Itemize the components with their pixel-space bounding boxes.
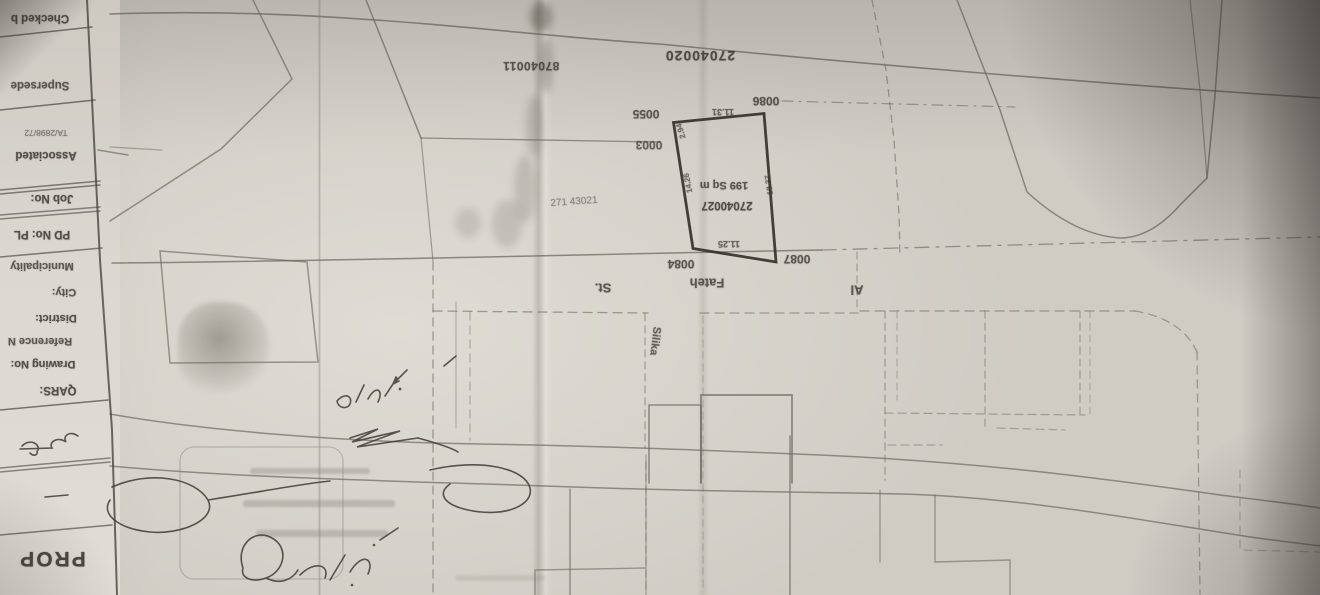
title-row-reference-no: Reference N	[8, 335, 72, 347]
title-row-associated: Associated	[15, 149, 76, 161]
title-row-qars: QARS:	[39, 384, 76, 396]
title-row-drawing-no: Drawing No:	[11, 358, 76, 370]
title-row-assoc-ref: TA/2898/72	[24, 128, 67, 138]
title-row-prop: PROP	[18, 546, 86, 570]
title-row-checked-by: Checked b	[11, 12, 69, 24]
title-row-district: District:	[35, 312, 77, 324]
site-plan-photo: 270400208704001100860055000311.312.94199…	[0, 0, 1320, 595]
title-row-supersede: Supersede	[11, 79, 70, 91]
title-row-job-no: Job No:	[31, 192, 74, 204]
title-label-layer: Checked bSupersedeTA/2898/72AssociatedJo…	[0, 0, 1320, 595]
title-row-pd-no: PD No: PL	[14, 228, 70, 240]
title-row-city: City:	[52, 286, 76, 298]
title-row-municipality: Municipality	[10, 260, 74, 272]
